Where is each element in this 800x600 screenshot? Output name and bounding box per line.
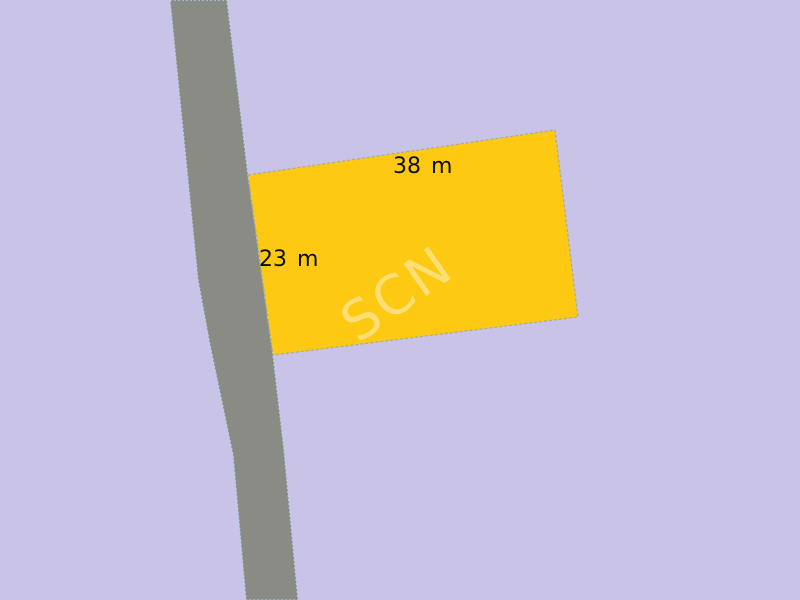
map-canvas[interactable]: SCN 38 m 23 m (0, 0, 800, 600)
map-viewport[interactable]: SCN 38 m 23 m (0, 0, 800, 600)
parcel-depth-label: 23 m (259, 247, 318, 272)
parcel-width-label: 38 m (393, 154, 452, 179)
